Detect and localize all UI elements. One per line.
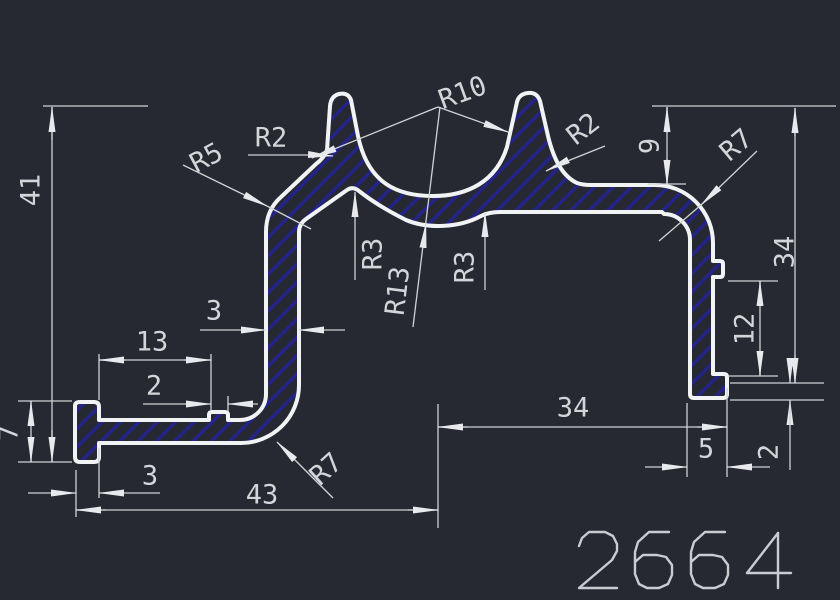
dim-text: 41: [16, 174, 47, 207]
dim-text: 5: [698, 434, 714, 465]
dim-text: 2: [146, 371, 162, 402]
radius-text: R3: [450, 251, 481, 284]
dim-text: 9: [635, 138, 666, 154]
dim-text: 34: [770, 236, 801, 269]
dim-text: 12: [730, 313, 761, 346]
dim-text: 13: [136, 327, 169, 358]
dim-text: 7: [0, 425, 25, 441]
dim-text: 43: [246, 480, 279, 511]
dim-text: 3: [142, 461, 158, 492]
dim-text: 3: [206, 296, 222, 327]
cad-canvas: 41 7 3 43 13 2 3: [0, 0, 840, 600]
dim-text: 2: [754, 444, 785, 460]
radius-text: R2: [255, 123, 288, 154]
radius-text: R13: [380, 265, 417, 317]
dim-text: 34: [557, 393, 590, 424]
radius-text: R3: [358, 238, 389, 271]
